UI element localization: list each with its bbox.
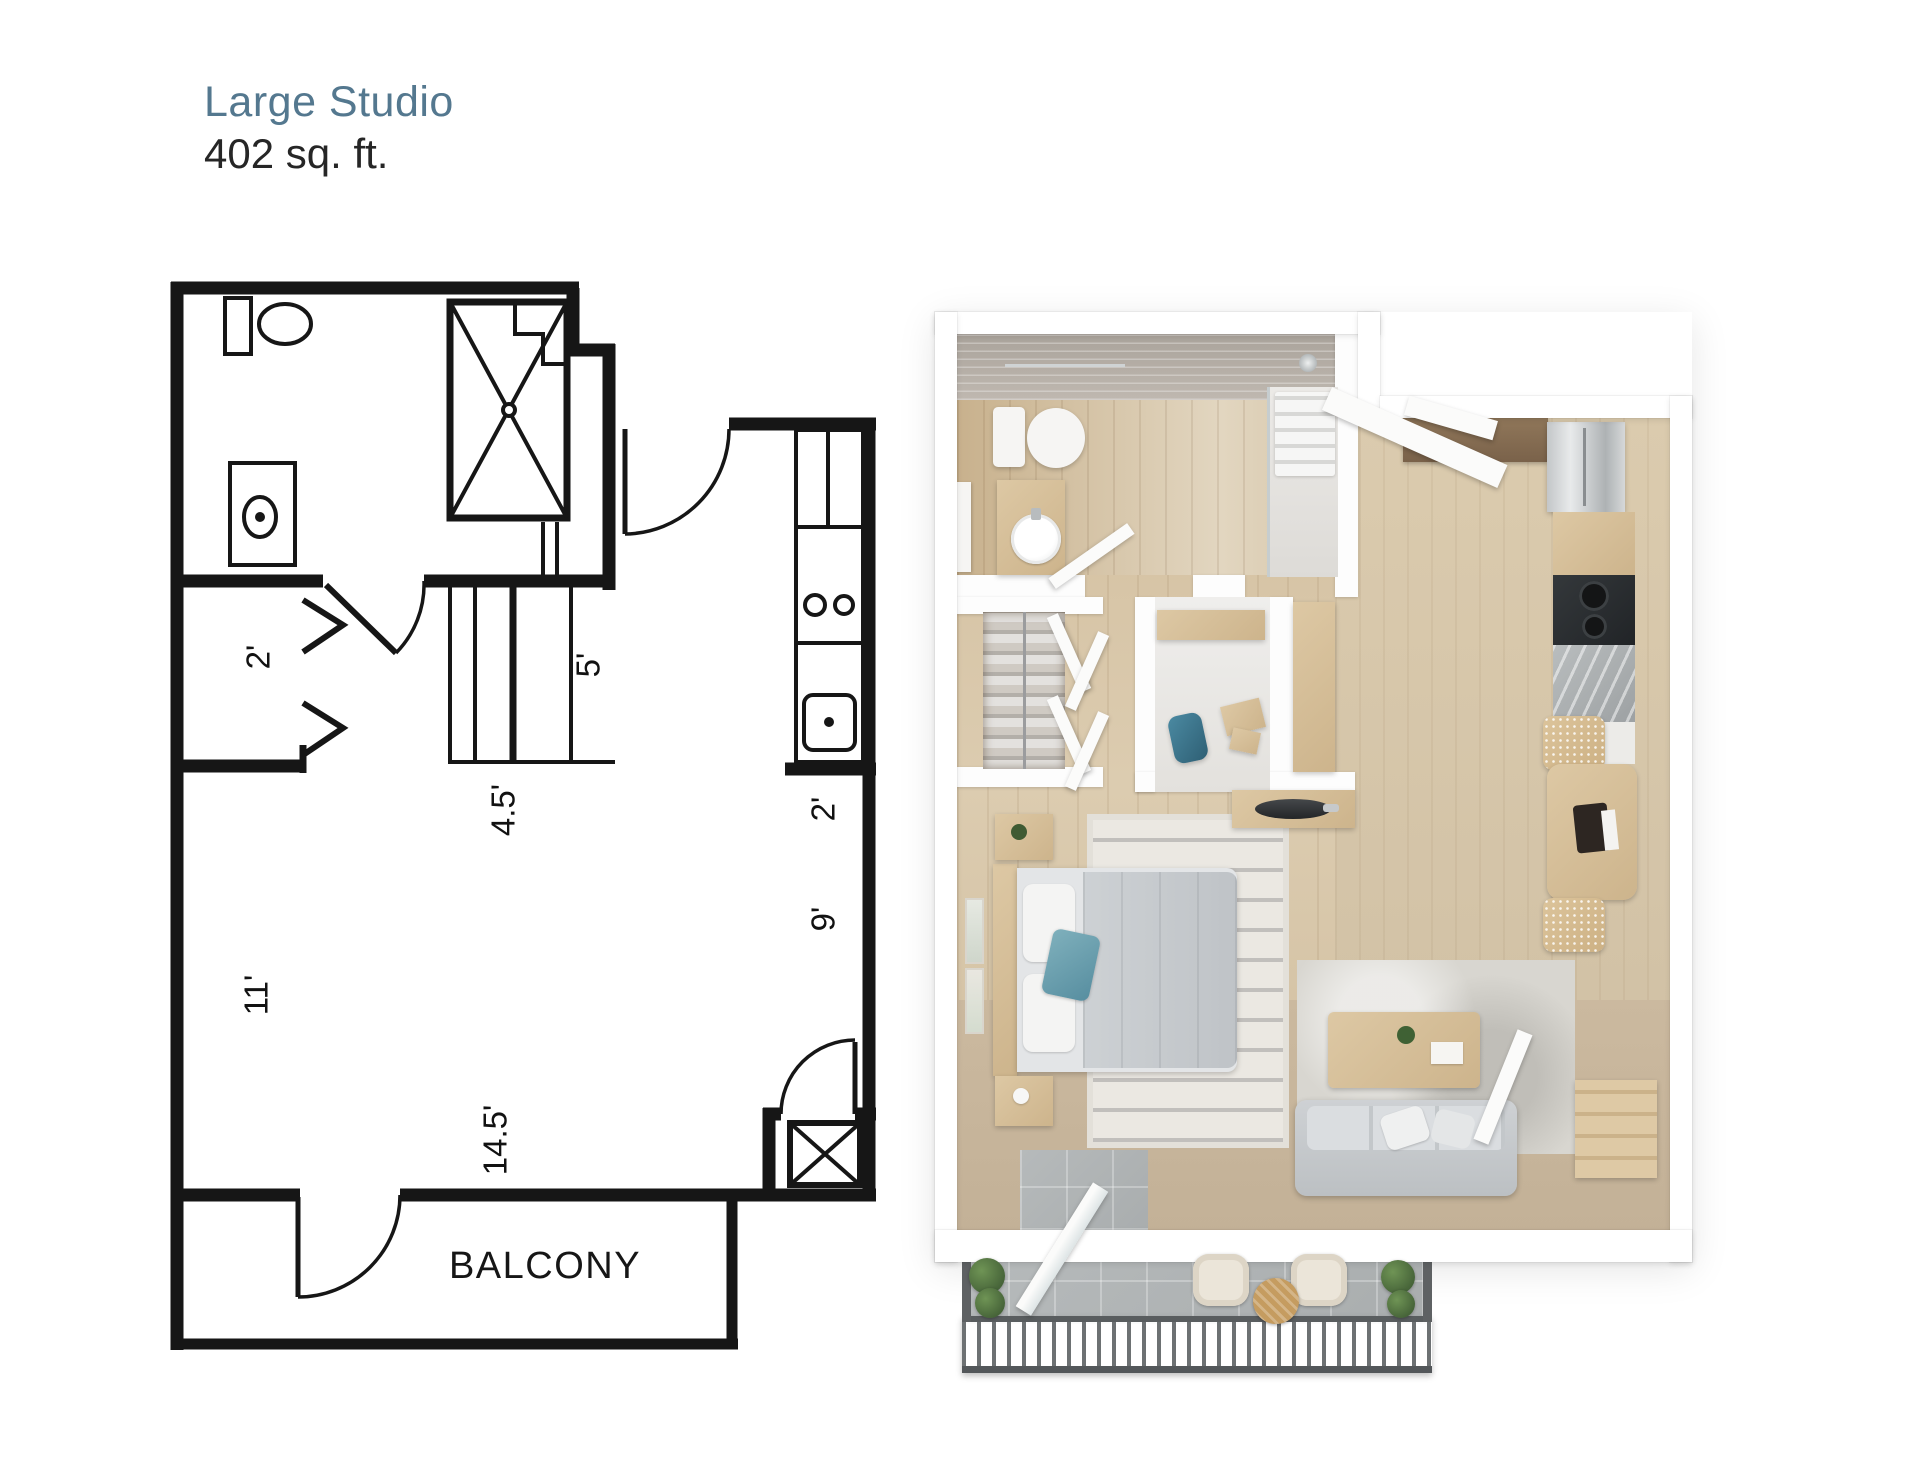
page-area-subtitle: 402 sq. ft. <box>204 130 388 178</box>
kitchen-counter-marble <box>1553 645 1635 722</box>
dim-kitchen-run: 9' <box>805 907 842 932</box>
dim-hall-width: 5' <box>570 653 607 678</box>
kitchen-counter <box>796 430 863 762</box>
floorplan-2d-drawing: 2' 11' 4.5' 5' 2' 9' 14.5' BALCONY <box>163 272 883 1362</box>
stove-burner-1 <box>805 595 825 615</box>
floorplan-sheet: { "header": { "title": "Large Studio", "… <box>0 0 1920 1484</box>
bed-headboard <box>993 864 1017 1076</box>
shower-seat <box>515 302 567 364</box>
toilet-tank <box>993 407 1025 467</box>
balcony-door <box>298 1195 400 1297</box>
dining-chair-top <box>1543 716 1605 770</box>
dim-living-width: 14.5' <box>477 1105 514 1176</box>
dim-closet-width: 4.5' <box>485 784 522 836</box>
bathroom-mirror-panel <box>957 482 971 572</box>
wall-right-3d <box>1670 396 1692 1262</box>
shower-entry-lines <box>543 522 557 577</box>
vanity-sink <box>1011 514 1061 564</box>
kitchen-counter-wood <box>1553 512 1635 575</box>
floorplan-3d <box>935 312 1692 1360</box>
balcony-railing <box>962 1316 1432 1373</box>
balcony-rail-right <box>1423 1262 1432 1322</box>
entry-door <box>625 429 729 534</box>
vanity-symbol <box>230 463 295 565</box>
fridge <box>1547 422 1625 512</box>
utility-box-x <box>790 1123 860 1185</box>
dining-chair-bottom <box>1543 898 1605 952</box>
bathroom-door <box>326 581 424 653</box>
vanity-faucet <box>1031 508 1041 520</box>
shower-drain <box>503 404 515 416</box>
walls-outer <box>171 282 876 1350</box>
shower-symbol <box>450 302 567 577</box>
towel-bar <box>1005 364 1125 367</box>
toilet-bowl <box>259 304 311 344</box>
burner-small <box>1582 614 1607 639</box>
toilet-bowl <box>1027 408 1085 468</box>
closet-rod <box>1023 612 1026 769</box>
nook-shelf <box>1157 610 1265 640</box>
storage-bench <box>1575 1080 1657 1178</box>
bifold-door-lower <box>303 703 343 755</box>
vanity-drain <box>257 514 263 520</box>
utility-door-arc <box>781 1040 855 1114</box>
balcony-plant-3 <box>1381 1260 1415 1294</box>
island-cabinet <box>1293 602 1335 772</box>
balcony-plant-4 <box>1387 1290 1415 1318</box>
balcony-label: BALCONY <box>449 1245 641 1287</box>
wall-nook-right <box>1270 597 1293 792</box>
basin-faucet <box>1323 804 1339 812</box>
basin-sink <box>1255 799 1331 819</box>
bifold-doors <box>303 600 343 755</box>
utility-closet <box>781 1040 860 1185</box>
bifold-door-upper <box>303 600 343 652</box>
toilet-tank <box>225 298 251 354</box>
kitchen-sink-drain <box>826 719 832 725</box>
nightstand-lamp <box>1013 1088 1029 1104</box>
floorplan-2d: 2' 11' 4.5' 5' 2' 9' 14.5' BALCONY <box>163 272 883 1362</box>
balcony-chair-left <box>1193 1254 1249 1306</box>
wall-bath-right <box>1335 334 1358 597</box>
wall-nook-left <box>1135 597 1155 792</box>
wall-art-2 <box>965 968 984 1034</box>
toilet-symbol <box>225 298 311 354</box>
wall-bath-bottom-b <box>1193 575 1245 597</box>
page-title: Large Studio <box>204 78 454 127</box>
burner-large <box>1579 581 1609 611</box>
wall-art-1 <box>965 898 984 964</box>
stove-burner-2 <box>835 596 853 614</box>
shower-head <box>1299 354 1317 372</box>
entry-door-arc <box>625 429 729 534</box>
fridge-door-line <box>1583 428 1586 506</box>
nightstand-plant <box>1011 824 1027 840</box>
balcony-door-arc <box>298 1195 400 1297</box>
coffee-table-plant <box>1397 1026 1415 1044</box>
bed-duvet <box>1083 872 1237 1068</box>
balcony-chair-right <box>1291 1254 1347 1306</box>
wall-top-left-3d <box>935 312 1380 334</box>
dim-kitchen-depth: 2' <box>805 797 842 822</box>
balcony-plant-2 <box>975 1288 1005 1318</box>
dim-bedroom-wall: 11' <box>238 975 275 1016</box>
coffee-table-book <box>1431 1042 1463 1064</box>
balcony-table <box>1253 1278 1299 1324</box>
dim-closet-depth: 2' <box>240 645 277 670</box>
wall-left-3d <box>935 312 957 1262</box>
bathroom-door-arc <box>396 581 424 653</box>
